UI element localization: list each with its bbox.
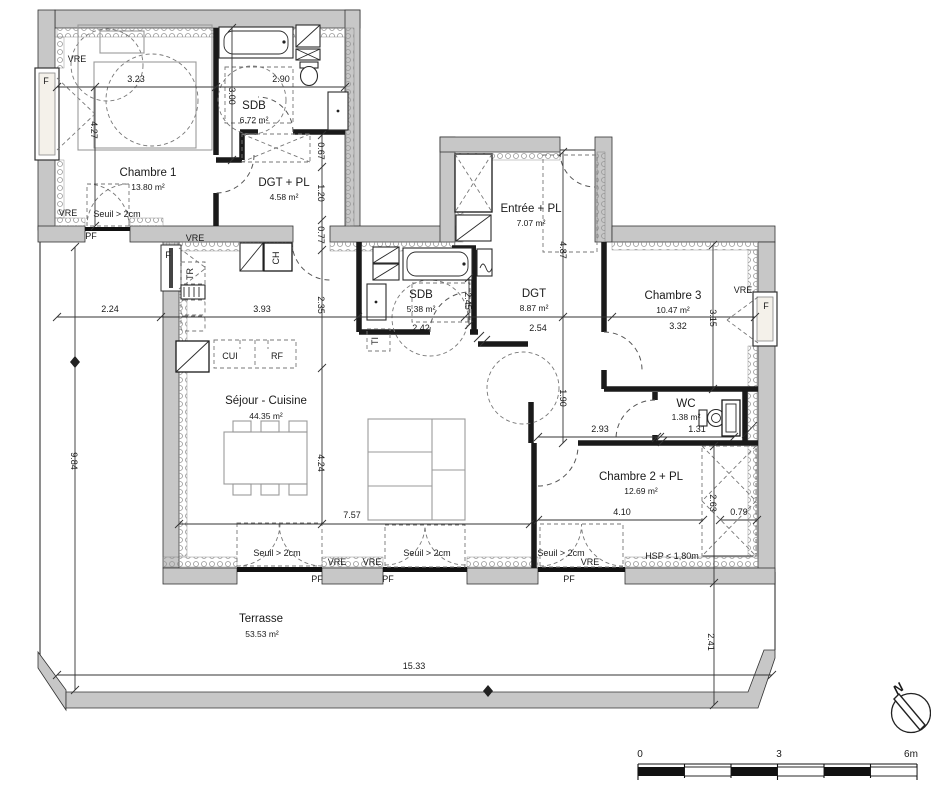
dim-wc-width: 1.31 [688,424,706,434]
basin-sdb1-right [328,92,348,130]
room-dgt2: DGT [522,288,546,300]
scale-seg-4 [778,767,825,776]
label-vre-2: VRE [59,208,78,218]
label-pf-3: PF [382,574,394,584]
room-sejour-area: 44.35 m² [249,411,283,421]
dim-dgt-width: 2.54 [529,323,547,333]
dim-dgt-height: 1.90 [558,389,568,407]
dim-entree-height: 4.87 [558,241,568,259]
door-wc [616,400,655,439]
toilet-sdb1 [300,62,318,86]
floor-plan-drawing: 3.23 2.90 3.00 4.27 0.67 1.20 0.77 2.24 … [0,0,931,800]
dim-sdb1-width: 2.90 [272,74,290,84]
dim-terrace-bottom-height: 2.41 [706,633,716,651]
room-chambre3: Chambre 3 [645,290,702,302]
room-sdb1-area: 6.72 m² [240,115,269,125]
dim-sdb1-height: 3.00 [227,87,237,105]
scale-seg-2 [685,767,732,776]
room-dgt2-area: 8.87 m² [520,303,549,313]
dim-ch2-left: 2.93 [591,424,609,434]
scale-label-6m: 6m [904,749,918,760]
washbasins-sdb2 [373,247,399,280]
label-vre-1: VRE [68,54,87,64]
label-seuil-2: Seuil > 2cm [253,548,300,558]
dim-terrace-left-width: 2.24 [101,304,119,314]
door-chambre2 [538,446,578,486]
room-dgt-pl: DGT + PL [258,177,310,189]
basin-sdb2 [367,284,386,320]
dining-table [224,421,307,495]
label-vre-3: VRE [186,233,205,243]
sill-pf1 [237,567,322,572]
terrace-edge [38,230,775,710]
annotations: VRE VRE VRE VRE VRE VRE VRE PF PF PF PF … [43,54,769,584]
dim-120: 1.20 [316,184,326,202]
closet-dgt-pl [242,134,310,162]
scale-label-3: 3 [776,749,782,760]
dim-077: 0.77 [316,226,326,244]
label-ti: TI [370,337,380,345]
room-sdb2-area: 5.38 m² [407,304,436,314]
label-vre-5: VRE [328,557,347,567]
bathtub-sdb2 [403,248,472,280]
sill-pf3 [538,567,625,572]
label-ch: CH [271,252,281,265]
dim-ch3-height: 3.15 [708,309,718,327]
compass: N [890,679,931,732]
room-terrasse-area: 53.53 m² [245,629,279,639]
washbasin-sdb1 [296,25,320,60]
scale-seg-5 [824,767,871,776]
dim-ch2-width: 4.10 [613,507,631,517]
scale-label-0: 0 [637,749,643,760]
label-f-3: F [763,301,769,311]
axis-diamonds [70,356,493,697]
room-entree-area: 7.07 m² [517,218,546,228]
bathtub-sdb1 [219,27,293,58]
label-rf: RF [271,351,283,361]
label-cui: CUI [222,351,238,361]
room-entree: Entrée + PL [500,203,562,215]
dim-sejour-upper-height: 2.35 [316,296,326,314]
scale-seg-6 [871,767,918,776]
dim-sdb2-width: 2.42 [412,323,430,333]
label-vre-7: VRE [581,557,600,567]
sill-pf2 [383,567,467,572]
scale-seg-1 [638,767,685,776]
room-chambre3-area: 10.47 m² [656,305,690,315]
radiator-sdb2 [477,249,492,276]
scale-seg-3 [731,767,778,776]
label-hsp: HSP < 1,80m [645,551,699,561]
dim-sejour-width: 7.57 [343,510,361,520]
room-dgt-pl-area: 4.58 m² [270,192,299,202]
doors [216,97,655,486]
label-seuil-3: Seuil > 2cm [403,548,450,558]
dim-slope-width: 0.79 [730,507,748,517]
label-vre-4: VRE [734,285,753,295]
floor-plan-page: 3.23 2.90 3.00 4.27 0.67 1.20 0.77 2.24 … [0,0,931,800]
label-pf-2: PF [311,574,323,584]
compass-needle [894,694,925,730]
label-f-2: F [165,250,171,260]
windows [35,68,777,572]
room-sdb1: SDB [242,100,266,112]
dim-ch2-height: 2.63 [708,494,718,512]
dim-ch1-width: 3.23 [127,74,145,84]
room-chambre2: Chambre 2 + PL [599,471,684,483]
dimension-lines [53,24,776,709]
door-entree [560,152,595,187]
label-seuil-1: Seuil > 2cm [93,209,140,219]
label-seuil-4: Seuil > 2cm [537,548,584,558]
room-sdb2: SDB [409,289,433,301]
label-tr: TR [185,268,195,280]
window-sejour-west-f [161,245,181,291]
dim-terrace-width: 15.33 [403,661,426,671]
dim-sejour-height: 4.24 [316,454,326,472]
room-wc: WC [676,398,695,410]
dim-ch1-height: 4.27 [89,121,99,139]
dim-ch3-width: 3.32 [669,321,687,331]
room-chambre1: Chambre 1 [120,167,177,179]
sofa [368,419,465,520]
dim-sdb2-height: 2.45 [463,292,473,310]
dim-kitchen-width: 3.93 [253,304,271,314]
label-f-1: F [43,76,49,86]
room-chambre2-area: 12.69 m² [624,486,658,496]
dim-terrace-left-height: 9.84 [69,452,79,470]
label-pf-1: PF [85,231,97,241]
room-chambre1-area: 13.80 m² [131,182,165,192]
label-pf-4: PF [563,574,575,584]
room-sejour: Séjour - Cuisine [225,395,307,407]
room-wc-area: 1.38 m² [672,412,701,422]
door-chambre3 [604,332,642,370]
washbasin-entree [456,215,491,241]
label-vre-6: VRE [363,557,382,567]
room-terrasse: Terrasse [239,613,283,625]
dim-067: 0.67 [316,142,326,160]
scale-bar: 0 3 6m [637,749,918,780]
